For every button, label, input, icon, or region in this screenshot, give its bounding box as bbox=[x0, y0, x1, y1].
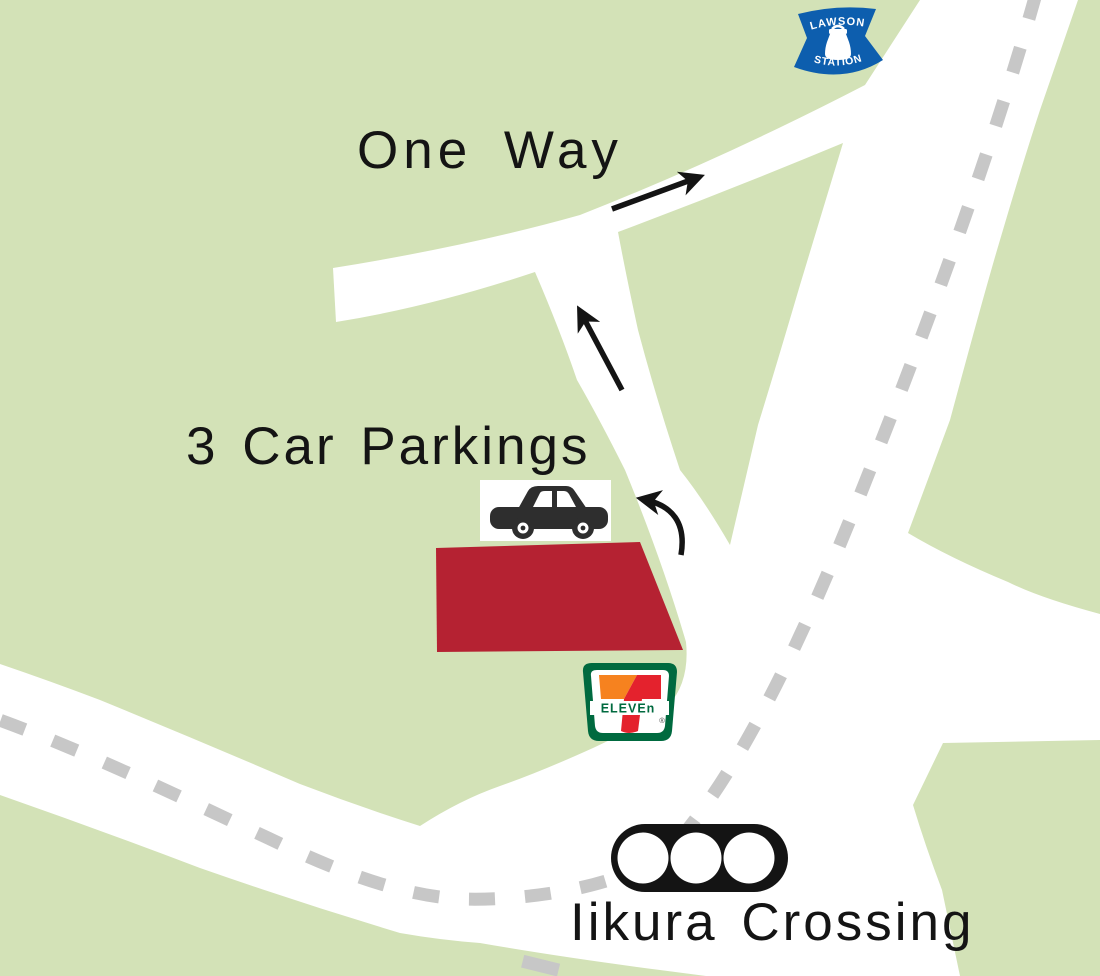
registered-mark: ® bbox=[659, 716, 665, 725]
land-parcel-center-triangle bbox=[618, 143, 843, 545]
car-rear-wheel bbox=[572, 517, 594, 539]
north-branch-arrow bbox=[580, 311, 622, 390]
traffic-light-lamp-2 bbox=[671, 833, 722, 884]
car-front-wheel bbox=[512, 517, 534, 539]
eleven-text: ELEVEn bbox=[601, 702, 656, 716]
traffic-light-icon bbox=[611, 824, 788, 892]
traffic-light-lamp-3 bbox=[724, 833, 775, 884]
parking-lot-area bbox=[436, 542, 683, 652]
one-way-label: One Way bbox=[357, 124, 623, 177]
seven-eleven-logo: ELEVEn ® bbox=[583, 663, 677, 741]
iikura-crossing-label: Iikura Crossing bbox=[570, 896, 974, 949]
direction-map: LAWSON STATION ELEVEn ® One Way 3 Car Pa… bbox=[0, 0, 1100, 976]
car-parkings-label: 3 Car Parkings bbox=[186, 420, 591, 473]
car-icon bbox=[480, 480, 611, 541]
traffic-light-lamp-1 bbox=[618, 833, 669, 884]
land-parcel-northeast bbox=[908, 0, 1100, 614]
